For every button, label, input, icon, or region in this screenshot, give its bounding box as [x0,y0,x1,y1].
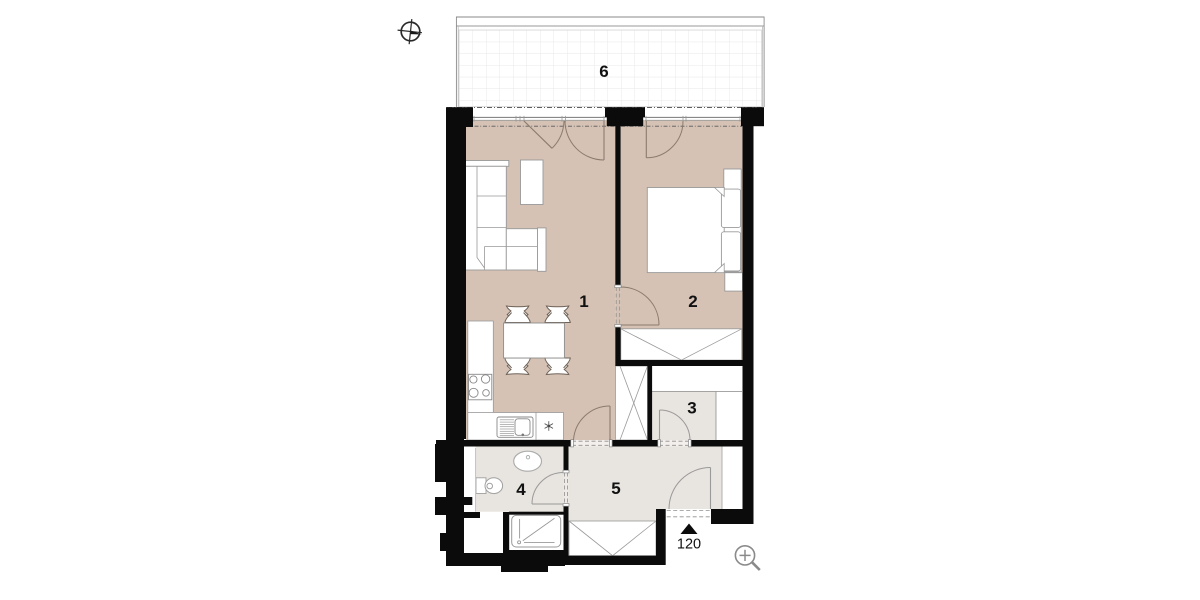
svg-text:2: 2 [688,292,697,311]
svg-text:4: 4 [516,480,526,499]
svg-text:6: 6 [599,62,608,81]
svg-text:3: 3 [687,399,696,418]
svg-text:1: 1 [579,292,588,311]
svg-text:120: 120 [677,537,701,553]
svg-text:5: 5 [611,479,620,498]
